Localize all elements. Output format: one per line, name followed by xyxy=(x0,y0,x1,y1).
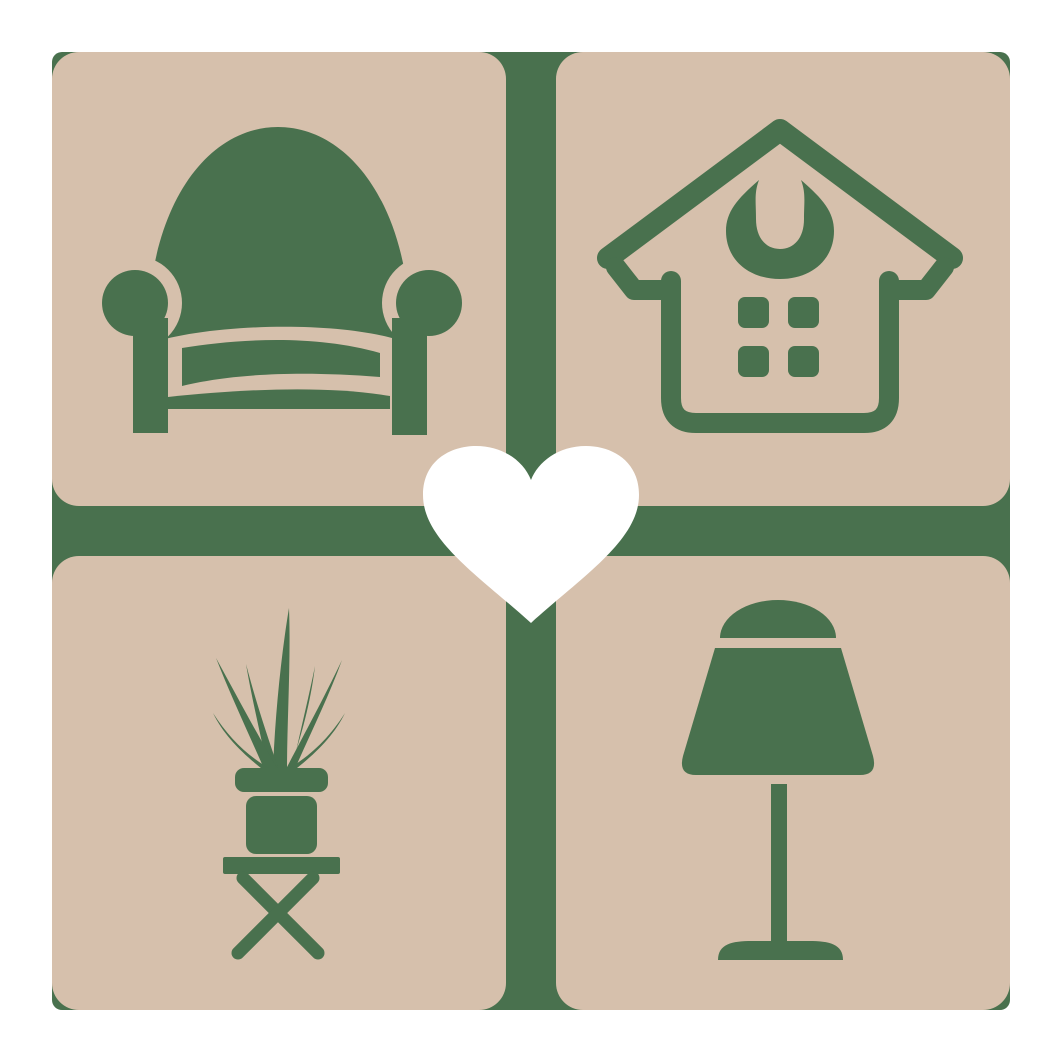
pot-body xyxy=(246,796,317,854)
tile-top-left xyxy=(52,52,506,506)
house-icon xyxy=(556,52,1010,506)
lamp-stem xyxy=(771,784,787,944)
lamp-cap xyxy=(720,600,836,638)
logo xyxy=(52,52,1010,1010)
heart-icon xyxy=(423,446,639,623)
armchair-icon xyxy=(52,52,506,506)
tile-bottom-left xyxy=(52,556,506,1010)
plant-leaves xyxy=(213,608,345,772)
stool-x-legs xyxy=(238,878,318,953)
lamp-base xyxy=(718,941,843,960)
tile-bottom-right xyxy=(556,556,1010,1010)
tile-top-right xyxy=(556,52,1010,506)
crescent-ornament-icon xyxy=(726,180,834,279)
stool-top xyxy=(223,857,340,874)
window-panes-icon xyxy=(738,297,819,377)
potted-plant-icon xyxy=(52,556,506,1010)
pot-rim xyxy=(235,768,328,792)
table-lamp-icon xyxy=(556,556,1010,1010)
lamp-shade xyxy=(682,648,874,775)
